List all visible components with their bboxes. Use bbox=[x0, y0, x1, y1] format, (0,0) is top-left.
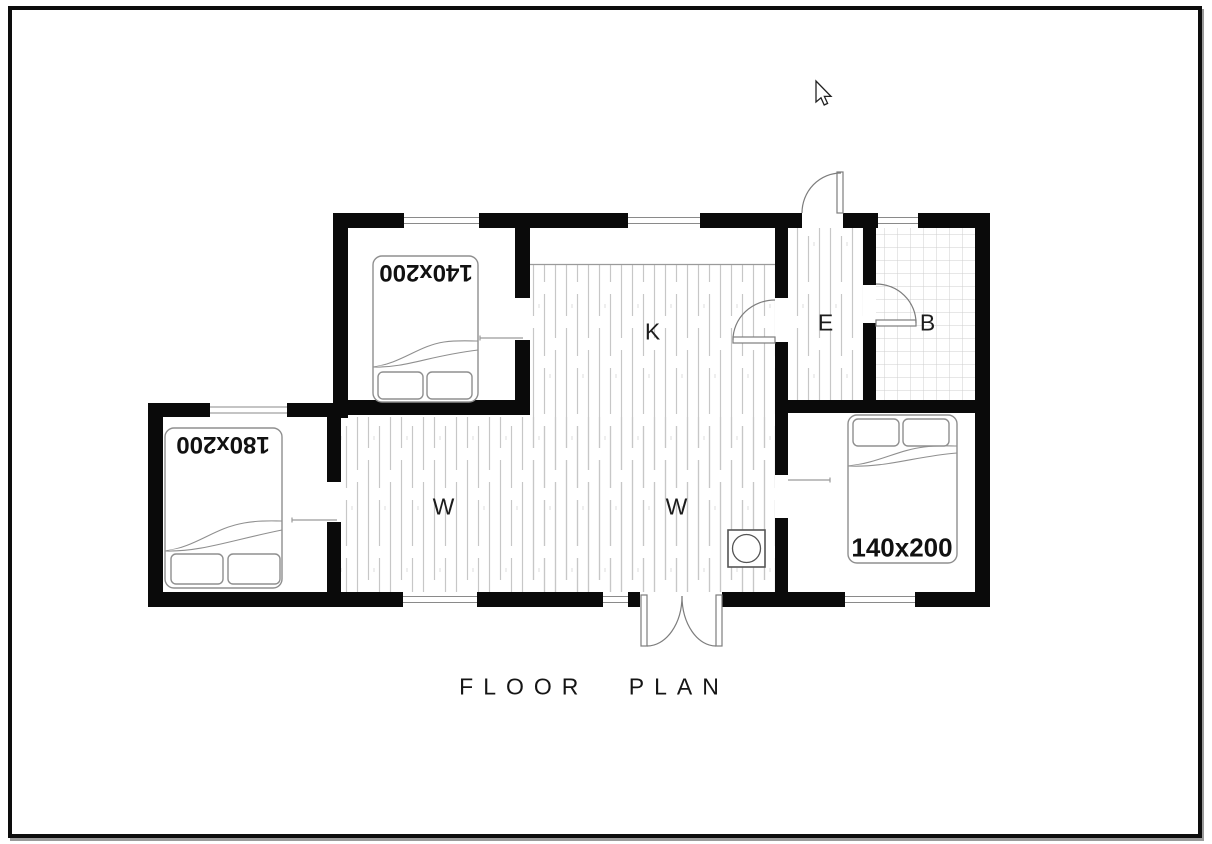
wall-entry-bath-upper bbox=[863, 213, 876, 285]
stove-icon bbox=[728, 530, 765, 567]
pillow bbox=[853, 419, 899, 446]
room-label-bathroom: B bbox=[920, 310, 936, 337]
room-label-living-left: W bbox=[433, 494, 456, 521]
wall-right-bedroom-left-lower bbox=[775, 518, 788, 607]
left-bedroom-door bbox=[292, 518, 337, 523]
window-top-bedroom bbox=[404, 213, 479, 228]
bed-size-left-bedroom: 180x200 bbox=[176, 430, 269, 458]
wall-left-main bbox=[333, 213, 348, 418]
pillow bbox=[903, 419, 949, 446]
room-label-living-right: W bbox=[666, 494, 689, 521]
wall-right-bedroom-top bbox=[775, 400, 990, 413]
wall-top-bedroom-right-upper bbox=[515, 213, 530, 298]
bed-size-top-bedroom: 140x200 bbox=[379, 258, 472, 286]
pillow bbox=[228, 554, 280, 584]
wall-left-bedroom-left bbox=[148, 403, 163, 607]
floor-plan-page: K E B W W 140x200 180x200 140x200 FLOOR … bbox=[0, 0, 1212, 844]
wall-entry-bath-lower bbox=[863, 323, 876, 400]
pillow bbox=[427, 372, 472, 399]
window-left-bedroom bbox=[210, 403, 287, 417]
pillow bbox=[378, 372, 423, 399]
wall-right-bedroom-left-upper bbox=[775, 413, 788, 475]
top-bedroom-door bbox=[480, 336, 523, 341]
plan-title: FLOOR PLAN bbox=[459, 674, 729, 701]
pillow bbox=[171, 554, 223, 584]
wall-entry-left-upper bbox=[775, 213, 788, 298]
entry-door bbox=[802, 172, 843, 228]
mouse-cursor-icon bbox=[816, 81, 831, 105]
floor-plan-drawing bbox=[0, 0, 1212, 844]
wall-left-bedroom-right-lower bbox=[327, 522, 341, 607]
right-bedroom-door bbox=[788, 478, 830, 483]
window-living-small bbox=[603, 592, 628, 607]
wall-entry-left-lower bbox=[775, 342, 788, 400]
bed-size-right-bedroom: 140x200 bbox=[851, 533, 952, 564]
window-bathroom bbox=[878, 213, 918, 228]
room-label-kitchen: K bbox=[645, 319, 661, 346]
room-label-entry: E bbox=[818, 310, 834, 337]
wall-left-bedroom-right-upper bbox=[327, 403, 341, 482]
double-entrance-door bbox=[640, 592, 722, 646]
window-right-bedroom bbox=[845, 592, 915, 607]
window-kitchen bbox=[628, 213, 700, 228]
window-living-left bbox=[403, 592, 477, 607]
